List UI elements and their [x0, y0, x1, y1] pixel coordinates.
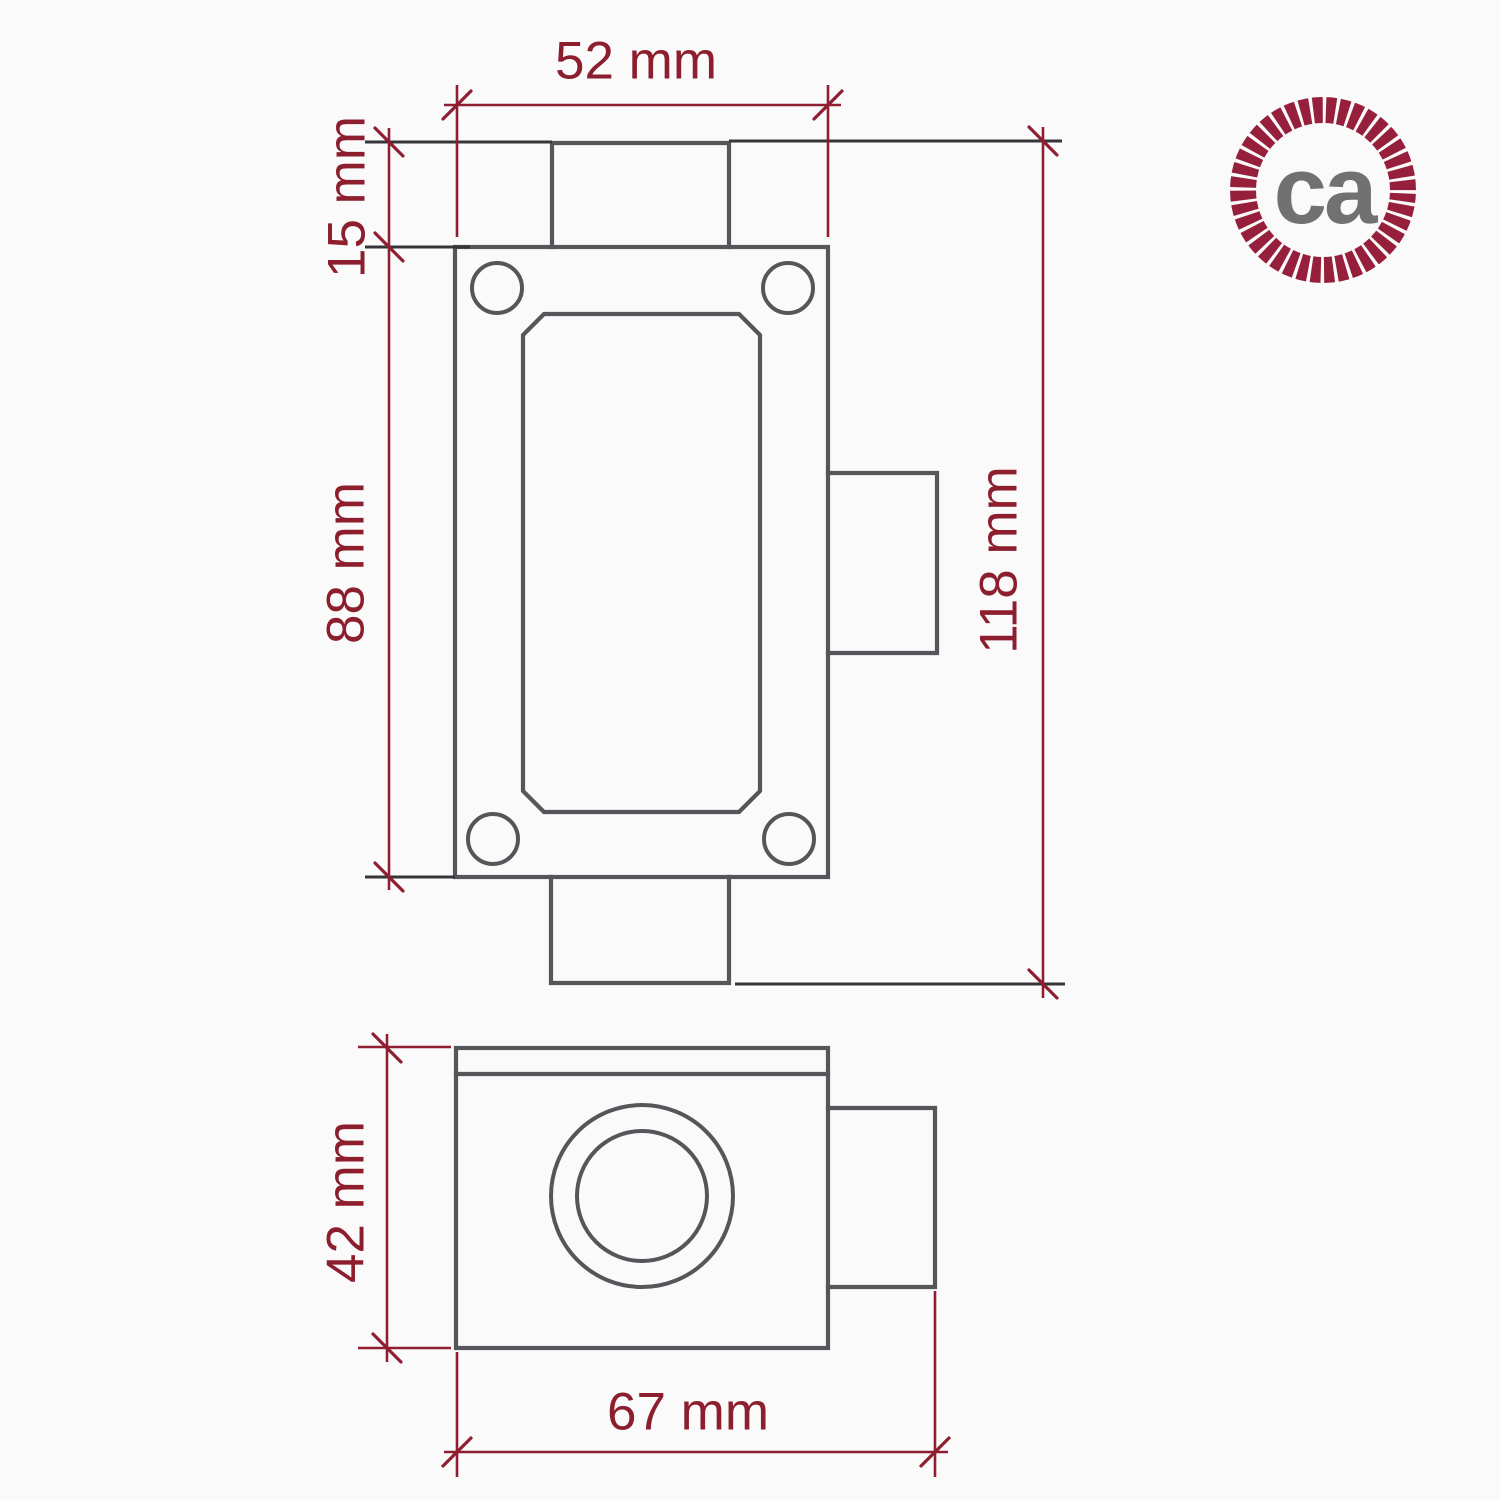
- label-body-width: 52 mm: [555, 35, 717, 88]
- dimension-15mm-88mm: [375, 128, 403, 891]
- dimension-drawing-page: { "colors": { "bg": "#fafafa", "ink": "#…: [0, 0, 1500, 1500]
- rope-ring-icon: ca: [1230, 97, 1416, 283]
- screw-hole-bottom-left: [468, 814, 518, 864]
- front-view: [455, 143, 937, 983]
- front-top-stub: [552, 143, 729, 247]
- front-bottom-stub: [551, 877, 729, 983]
- dimension-52mm: [443, 85, 842, 237]
- screw-hole-top-left: [472, 263, 522, 313]
- label-total-height: 118 mm: [973, 466, 1026, 654]
- screw-hole-bottom-right: [764, 814, 814, 864]
- brand-logo: ca: [1230, 97, 1416, 283]
- brand-logo-text: ca: [1274, 137, 1378, 244]
- screw-hole-top-right: [763, 263, 813, 313]
- conduit-opening-inner: [577, 1131, 707, 1261]
- dimension-118mm: [1029, 127, 1057, 998]
- bottom-view: [456, 1048, 935, 1348]
- label-total-depth: 67 mm: [607, 1386, 769, 1439]
- technical-drawing: 52 mm 15 mm 88 mm 118 mm 42 mm 67 mm ca: [0, 0, 1500, 1500]
- front-body: [455, 247, 828, 877]
- extension-lines: [365, 141, 1065, 984]
- label-body-height: 88 mm: [320, 482, 373, 644]
- front-cover-panel: [523, 314, 760, 812]
- bottom-body: [456, 1048, 828, 1348]
- label-depth-height: 42 mm: [320, 1121, 373, 1283]
- label-stub-height: 15 mm: [321, 116, 374, 278]
- front-side-stub: [828, 473, 937, 653]
- bottom-side-stub: [828, 1108, 935, 1287]
